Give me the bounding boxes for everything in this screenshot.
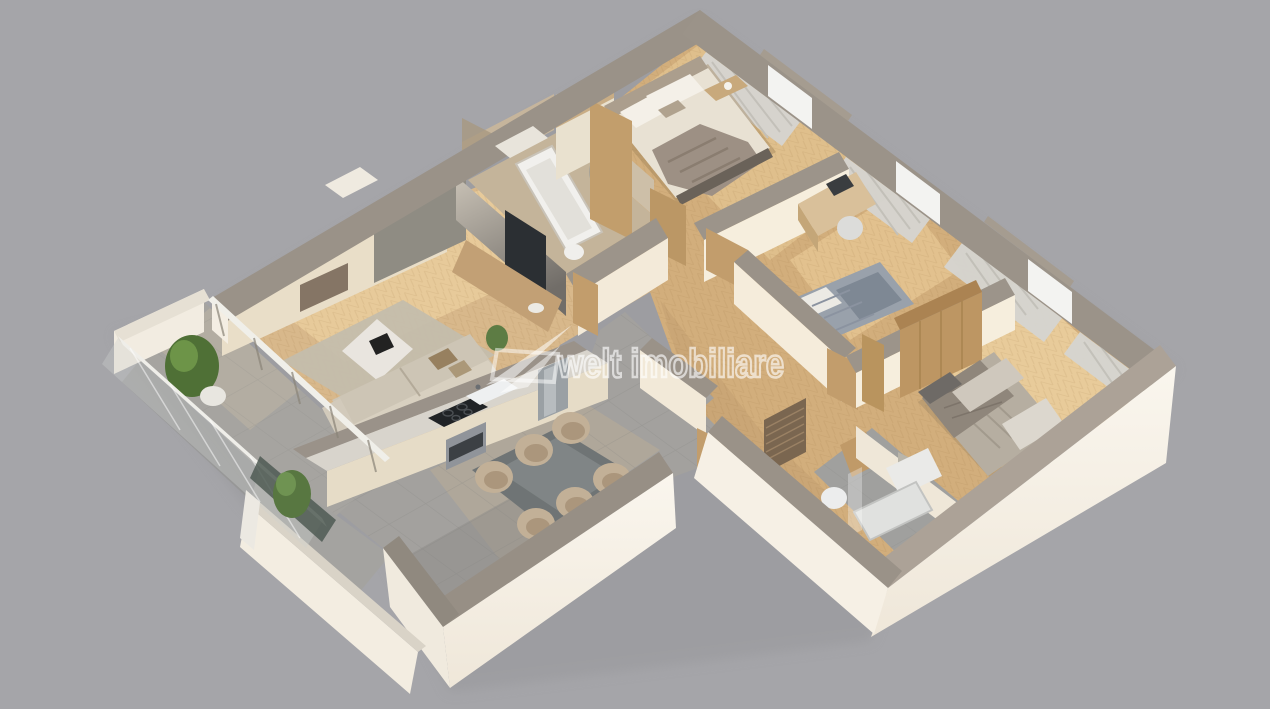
svg-text:welt imobiliare: welt imobiliare: [557, 342, 784, 386]
